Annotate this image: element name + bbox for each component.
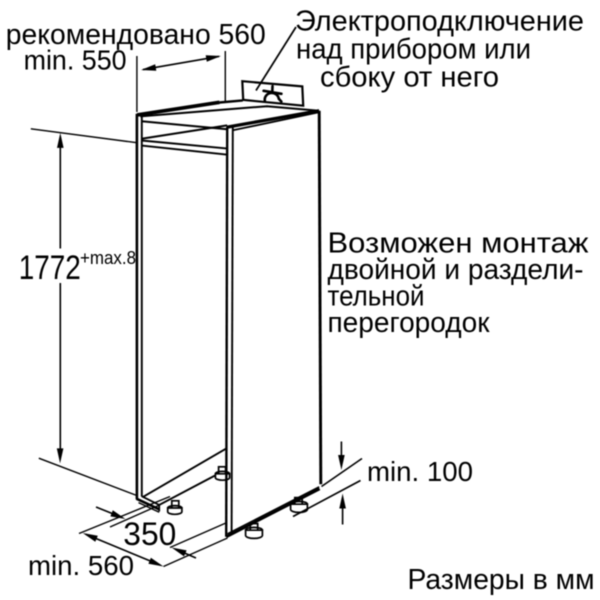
svg-text:перегородок: перегородок	[328, 307, 491, 339]
svg-text:min. 560: min. 560	[28, 550, 134, 581]
svg-text:min. 550: min. 550	[24, 45, 127, 76]
svg-text:Размеры в мм: Размеры в мм	[408, 564, 595, 596]
svg-text:+max.8: +max.8	[80, 248, 136, 268]
svg-text:1772: 1772	[19, 249, 81, 287]
svg-text:сбоку от него: сбоку от него	[320, 62, 499, 94]
svg-text:350: 350	[123, 516, 176, 552]
svg-text:min. 100: min. 100	[367, 456, 473, 487]
